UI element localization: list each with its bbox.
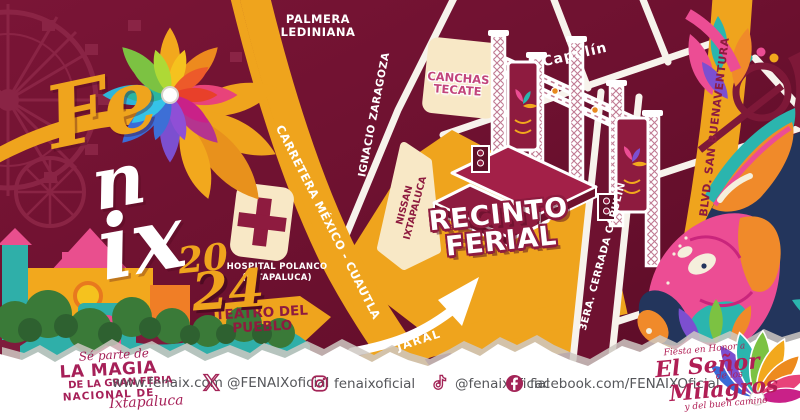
instagram-social-link[interactable]: fenaixoficial: [311, 375, 415, 392]
instagram-icon: [311, 375, 328, 392]
instagram-handle-text: fenaixoficial: [334, 376, 415, 392]
fenix-map-poster: PALMERA LEDINIANA IGNACIO ZARAGOZA Capul…: [0, 0, 800, 420]
logo-year-24: 24: [190, 258, 266, 324]
hospital-block: [229, 182, 296, 263]
street-label-line: LEDINIANA: [258, 26, 378, 39]
tiktok-icon: [432, 374, 449, 393]
tagline-right: Fiesta en Honor a El Señor de los Milagr…: [649, 338, 800, 416]
street-label-line: PALMERA: [258, 13, 378, 26]
street-label-palmera-lediniana: PALMERA LEDINIANA: [258, 13, 378, 38]
x-icon: [202, 373, 221, 392]
facebook-icon: [505, 374, 524, 393]
